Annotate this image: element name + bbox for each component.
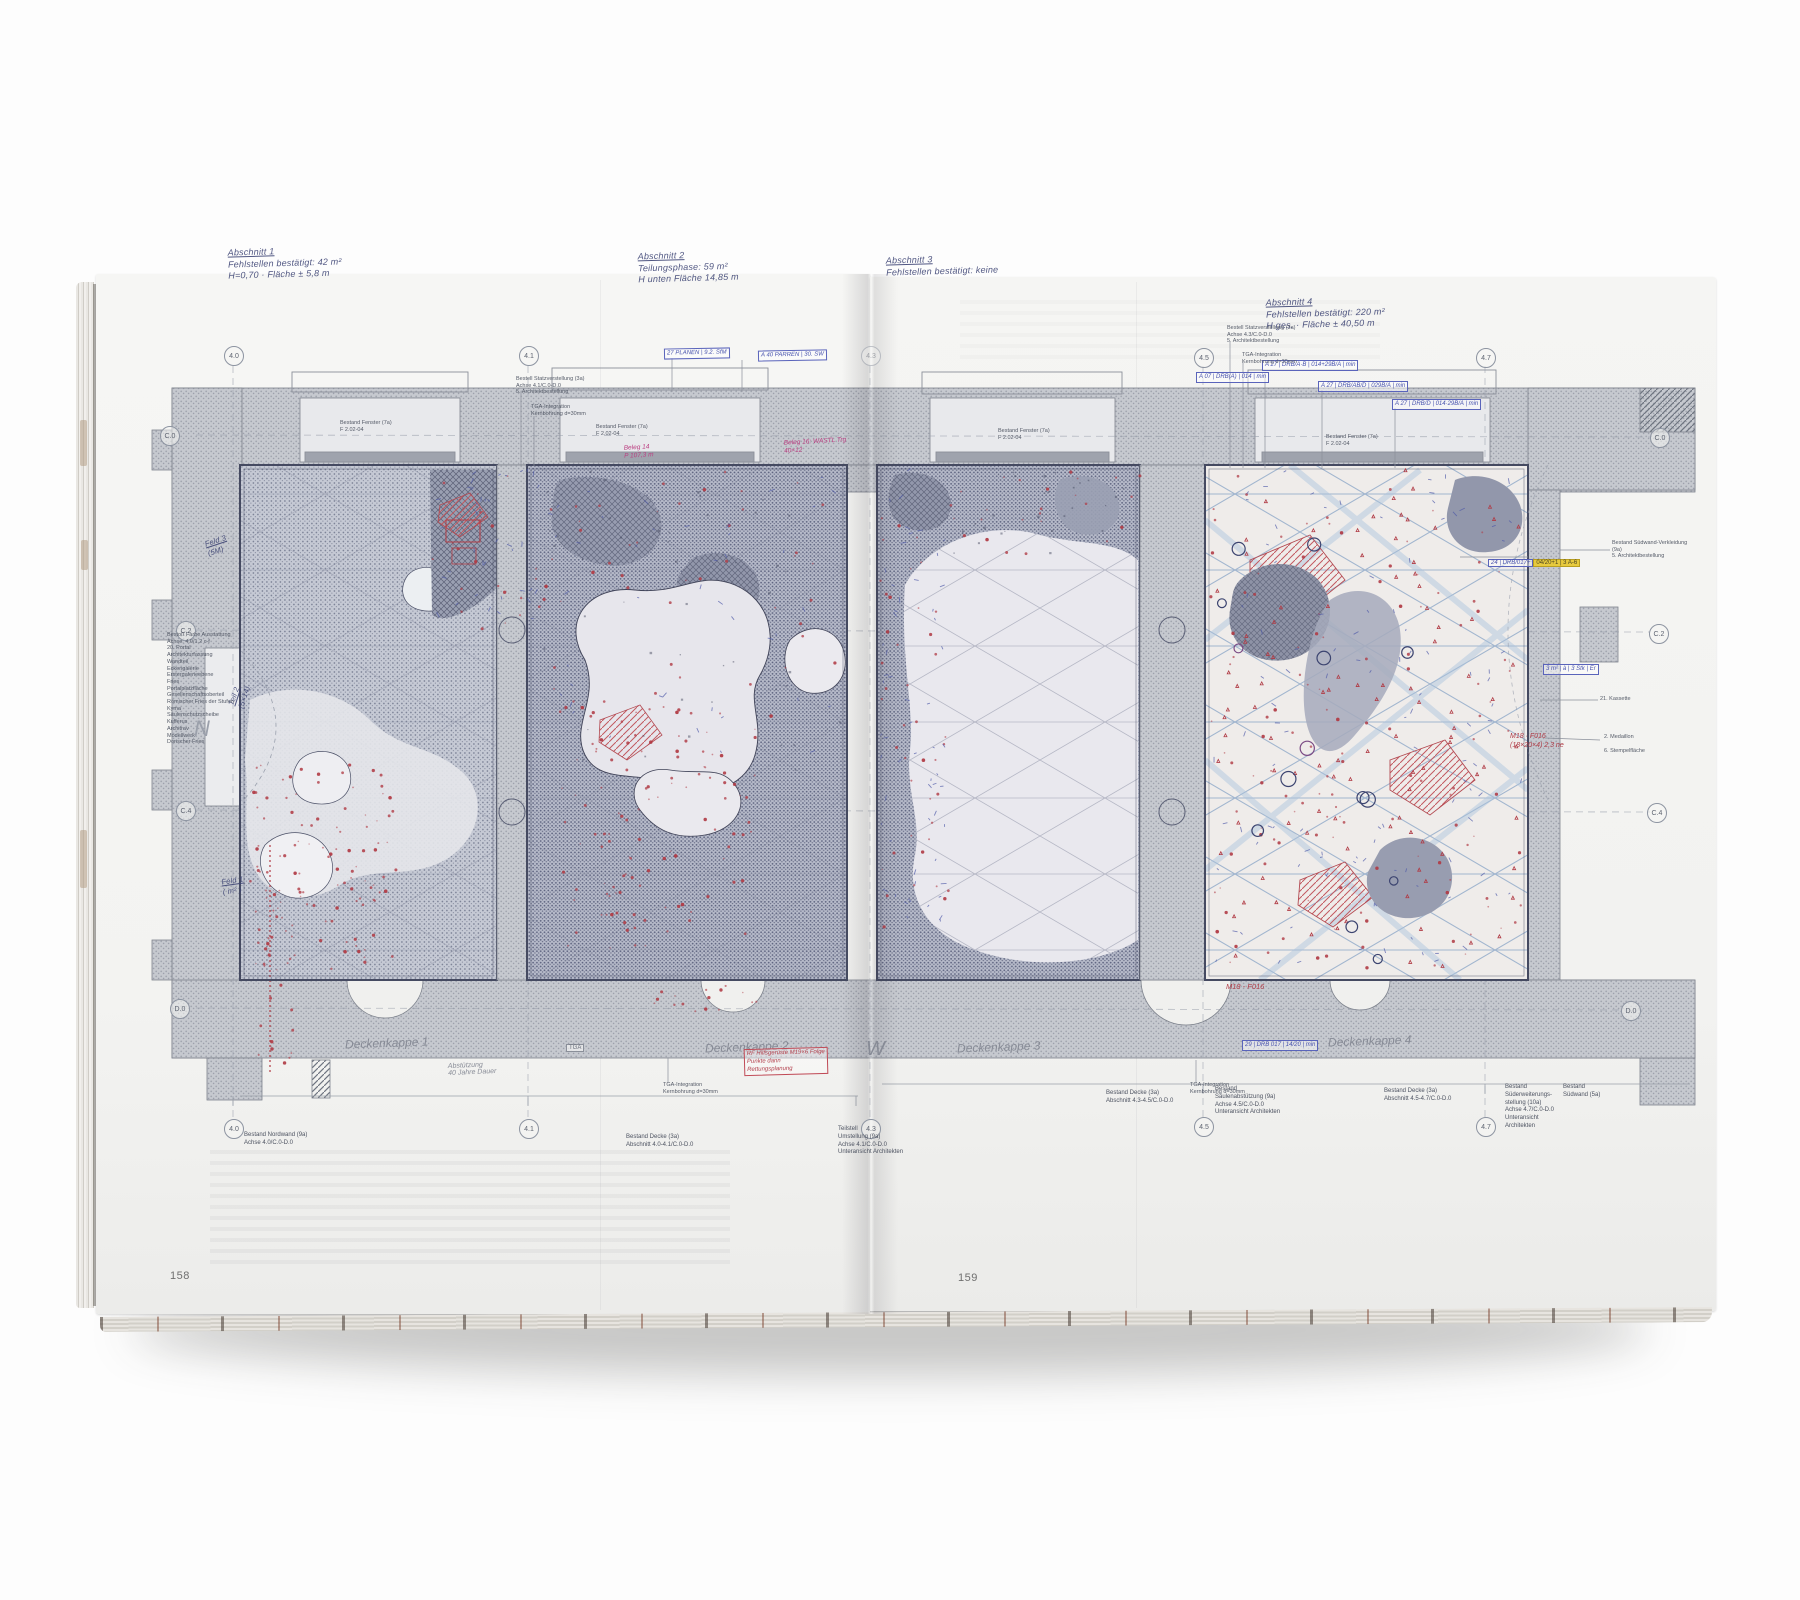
blue-code-label: A 07 | DRB(A) | 014 | min [1196,372,1269,383]
handwritten-note-abschnitt-2: Abschnitt 2 Teilungsphase: 59 m² H unten… [638,249,739,287]
yellow-label-prefix: 24 | DRB/017+ [1488,559,1533,567]
yellow-highlight-label: 24 | DRB/017+04/20+1 | 3 A-6 [1488,551,1580,569]
axis-marker: 4.7 [1476,348,1496,368]
axis-marker: 4.1 [519,1119,539,1139]
tga-box-label: TGA [566,1044,584,1052]
axis-marker: C.0 [1650,428,1670,448]
handwritten-note-abschnitt-1: Abschnitt 1 Fehlstellen bestätigt: 42 m²… [228,244,343,282]
left-page-number: 158 [170,1270,190,1282]
material-legend-block: Bestoß Farbe Ausstattung Achse: 4.0/1.2 … [167,632,239,746]
handwritten-feld-1-note: Feld 1 ( m² ) [221,875,246,897]
blue-code-label: 27 PLANEN | 9.2. SfM [664,347,730,359]
caption-decke-3: Bestand Decke (3a) Abschnitt 4.5-4.7/C.0… [1384,1088,1451,1104]
stat-label-left: Bestell Statzverstellung (3a) Achse 4.1/… [516,376,584,396]
axis-marker: C.0 [160,426,180,446]
caption-saeule: Bestand Säulenabstützung (9a) Achse 4.5/… [1215,1086,1280,1117]
axis-marker: C.4 [1647,803,1667,823]
handwritten-red-note-right-margin: M18 · F016 (18×20×4) 2,3 ne [1510,732,1564,750]
right-page-number: 159 [958,1272,978,1284]
tga-label-bottom: TGA-Integration Kernbohrung d=30mm [663,1082,718,1095]
handwritten-pencil-note: Abstützung 40 Jahre Dauer [448,1061,497,1077]
axis-marker: 4.5 [1194,348,1214,368]
blue-code-label: 29 | DRB 017 | 14/20 | min [1242,1040,1318,1051]
blue-code-label: A 27 | DRB/D | 014·29B/A | min [1392,399,1481,410]
axis-marker: 4.0 [224,1119,244,1139]
handwritten-magenta-note-2: Beleg 16: WASTL Trg 40×12 [784,436,847,455]
window-label: Bestand Fenster (7a) F 2.02-04 [596,424,648,437]
axis-marker: 4.7 [1476,1117,1496,1137]
axis-marker: D.0 [170,999,190,1019]
handwritten-red-note-box: RF Hilfsgerüste M19×6 Folge Punkte dann … [744,1047,829,1077]
handwritten-magenta-note-1: Beleg 14 P 107,3 m [624,443,654,461]
axis-marker: C.2 [1649,624,1669,644]
window-label: Bestand Fenster (7a) F 2.02-04 [340,420,392,433]
handwritten-west-letter: W [866,1038,885,1061]
axis-marker: 4.1 [519,346,539,366]
caption-decke-2: Bestand Decke (3a) Abschnitt 4.3-4.5/C.0… [1106,1090,1173,1106]
right-margin-label: 21. Kassette [1600,696,1631,703]
axis-marker: D.0 [1621,1001,1641,1021]
caption-decke-1: Bestand Decke (3a) Abschnitt 4.0-4.1/C.0… [626,1134,693,1150]
yellow-label-highlight: 04/20+1 | 3 A-6 [1533,559,1580,567]
axis-marker: 4.3 [861,346,881,366]
window-label: Bestand Fenster (7a) F 2.02-04 [1326,434,1378,447]
blue-code-label: A 40 PARREN | 30. SW [758,349,827,361]
ceiling-plan-drawing [0,0,1800,1600]
handwritten-red-note-panel4: M18 - F016 [1226,982,1264,992]
axis-marker: 4.0 [224,346,244,366]
right-wall-label: Bestand Südwand-Verkleidung (9a) 5. Arch… [1612,540,1696,560]
handwritten-label-deckenkappe-4: Deckenkappe 4 [1328,1033,1412,1050]
handwritten-label-deckenkappe-3: Deckenkappe 3 [957,1039,1041,1056]
blue-code-label: A 27 | DRB/AB/D | 029B/A | min [1318,381,1408,392]
axis-marker: C.4 [176,801,196,821]
caption-teilstell: Teilstell Umstellung (9a) Achse 4.1/C.0-… [838,1126,903,1157]
caption-nordwand: Bestand Nordwand (9a) Achse 4.0/C.0-D.0 [244,1132,307,1148]
tga-label: TGA-Integration Kernbohrung d=30mm [531,404,586,417]
handwritten-label-deckenkappe-1: Deckenkappe 1 [345,1035,429,1052]
handwritten-note-abschnitt-3: Abschnitt 3 Fehlstellen bestätigt: keine [886,252,999,278]
blue-code-label: 3 m² | à | 3 Stk | Er [1543,664,1599,675]
photograph-of-open-book: 4.0 4.1 4.3 4.5 4.7 4.0 4.1 4.3 4.5 4.7 … [0,0,1800,1600]
right-margin-label: 2. Medaillon [1604,734,1634,741]
book-gutter-shadow [842,274,898,1314]
window-label: Bestand Fenster (7a) F 2.02-04 [998,428,1050,441]
tga-label: TGA-Integration Kernbohrung d=30mm [1242,352,1297,365]
caption-sued-erweiterung: Bestand Süderweiterungs- stellung (10a) … [1505,1084,1554,1131]
caption-suedwand: Bestand Südwand (5a) [1563,1084,1600,1100]
stat-label-right: Bestell Statzverstellung (3a) Achse 4.3/… [1227,325,1295,345]
axis-marker: 4.5 [1194,1117,1214,1137]
right-margin-label: 6. Stempelfläche [1604,748,1645,755]
